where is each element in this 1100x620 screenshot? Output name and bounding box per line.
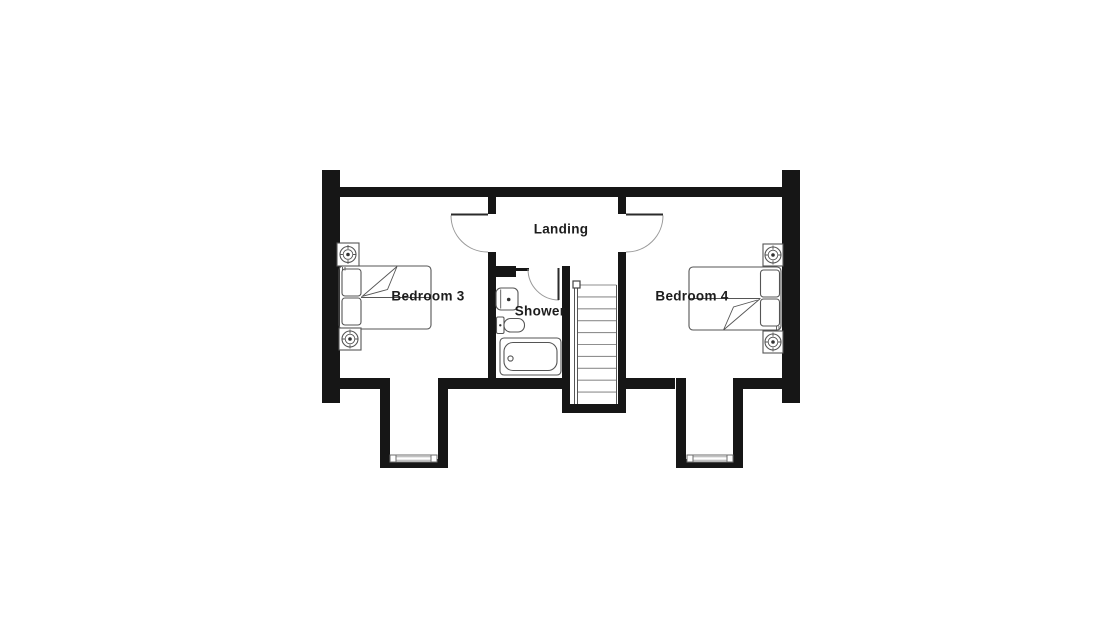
bedside-table-icon bbox=[339, 328, 361, 350]
stair-string-left bbox=[575, 288, 578, 404]
dormer-window-left bbox=[390, 455, 437, 462]
door-leaf bbox=[558, 268, 560, 300]
lamp-dot bbox=[771, 340, 775, 344]
door-leaf bbox=[626, 214, 663, 216]
lamp-dot bbox=[771, 253, 775, 257]
wall-bedroom4-landing-stub bbox=[618, 197, 626, 214]
bedroom4-furniture bbox=[689, 244, 783, 353]
bathtub-icon bbox=[500, 338, 561, 375]
wall-dormer-left-east bbox=[438, 378, 448, 468]
window-end-cap bbox=[727, 455, 733, 462]
door-bedroom-4 bbox=[626, 214, 663, 253]
bedside-table-icon bbox=[763, 331, 783, 353]
basin-tap-dot bbox=[507, 298, 511, 302]
duvet-fold bbox=[362, 267, 398, 298]
window-inner bbox=[392, 457, 436, 460]
shower-room-fixtures bbox=[496, 288, 561, 375]
wall-dormer-right-west bbox=[676, 378, 686, 468]
door-shower-room bbox=[528, 268, 560, 300]
wall-right-gable bbox=[782, 170, 800, 403]
pillow bbox=[761, 299, 780, 326]
toilet-bowl bbox=[504, 319, 525, 333]
wall-bottom-a bbox=[340, 378, 381, 389]
floorplan-drawing bbox=[0, 0, 1100, 620]
duvet-fold bbox=[724, 299, 760, 330]
staircase bbox=[573, 281, 617, 404]
double-bed-icon bbox=[689, 267, 781, 330]
pillow bbox=[342, 269, 361, 296]
wall-stairs-east bbox=[618, 252, 626, 413]
window-end-cap bbox=[431, 455, 437, 462]
wall-bedroom3-landing-stub bbox=[488, 197, 496, 214]
floorplan-canvas: Landing Bedroom 3 Bedroom 4 Shower bbox=[0, 0, 1100, 620]
pillow bbox=[761, 270, 780, 297]
window-inner bbox=[689, 457, 732, 460]
pillow bbox=[342, 298, 361, 325]
bedside-table-icon bbox=[337, 243, 359, 266]
dormer-window-right bbox=[687, 455, 733, 462]
window-end-cap bbox=[687, 455, 693, 462]
wall-dormer-left-west bbox=[380, 378, 390, 468]
wall-bottom-b bbox=[448, 378, 562, 389]
wall-left-gable bbox=[322, 170, 340, 403]
door-bedroom-3 bbox=[451, 214, 488, 253]
wall-shower-top-thin bbox=[516, 268, 529, 271]
wall-top bbox=[340, 187, 782, 197]
bedside-table-icon bbox=[763, 244, 783, 266]
door-swing-arc bbox=[528, 269, 559, 300]
stair-newel-post bbox=[573, 281, 580, 288]
wall-stairwell-bottom bbox=[562, 404, 626, 413]
double-bed-icon bbox=[339, 266, 431, 329]
basin-icon bbox=[496, 288, 518, 310]
wall-shower-top-thick bbox=[488, 266, 516, 277]
door-swing-arc bbox=[626, 216, 663, 253]
lamp-dot bbox=[346, 253, 350, 257]
wall-stairs-west bbox=[562, 266, 570, 413]
bedroom3-furniture bbox=[337, 243, 431, 350]
wall-dormer-right-east bbox=[733, 378, 743, 468]
window-end-cap bbox=[390, 455, 396, 462]
lamp-dot bbox=[348, 337, 352, 341]
wall-bottom-c bbox=[626, 378, 675, 389]
door-leaf bbox=[451, 214, 488, 216]
toilet-button-dot bbox=[499, 324, 501, 326]
toilet-icon bbox=[497, 317, 525, 334]
wall-bottom-d bbox=[743, 378, 782, 389]
headboard-mark bbox=[777, 326, 780, 330]
door-swing-arc bbox=[451, 216, 488, 253]
